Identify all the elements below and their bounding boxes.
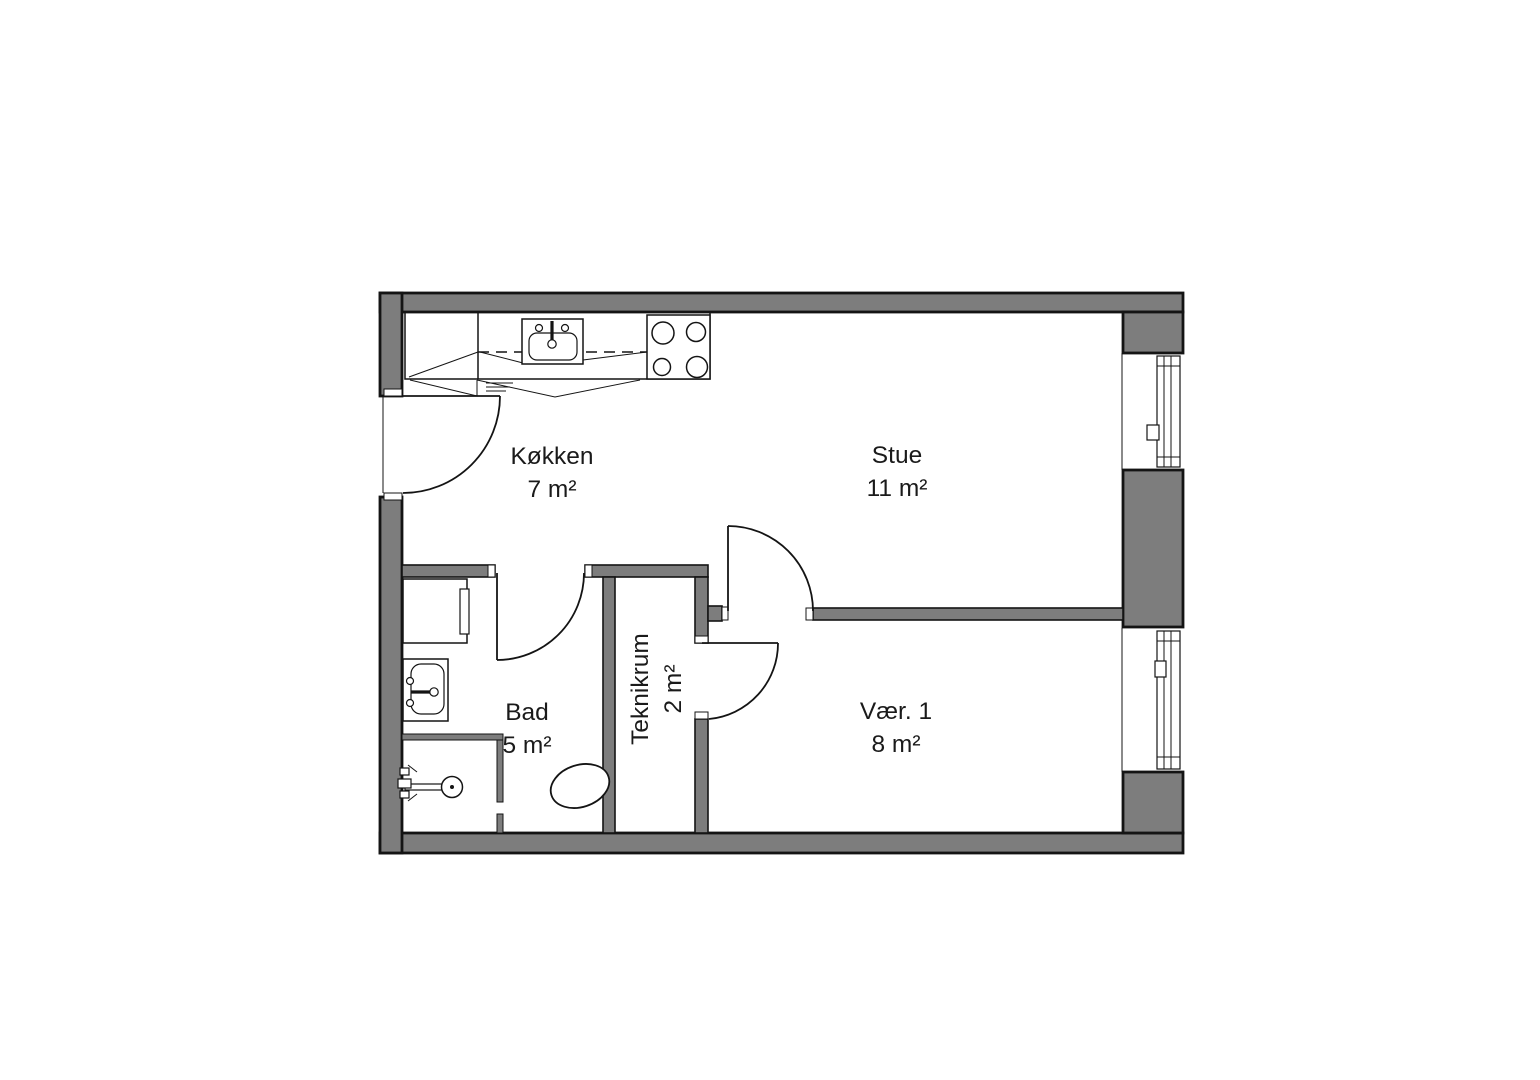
bedroom-window xyxy=(1122,628,1180,772)
living-room-window xyxy=(1122,353,1180,470)
bathroom-door xyxy=(497,573,584,660)
bathroom-cabinet xyxy=(403,579,469,643)
room-label-kokken: Køkken 7 m² xyxy=(510,440,593,506)
room-label-vaer1: Vær. 1 8 m² xyxy=(860,695,932,761)
room-name: Teknikrum xyxy=(624,633,657,745)
room-label-stue: Stue 11 m² xyxy=(867,439,928,505)
room-name: Bad xyxy=(503,696,552,729)
kitchen-sink-icon xyxy=(522,319,583,364)
room-label-bad: Bad 5 m² xyxy=(503,696,552,762)
floorplan-canvas: Køkken 7 m² Stue 11 m² Bad 5 m² Teknikru… xyxy=(0,0,1540,1080)
room-name: Stue xyxy=(867,439,928,472)
room-name: Køkken xyxy=(510,440,593,473)
room-area: 7 m² xyxy=(510,473,593,506)
room-label-teknikrum: Teknikrum 2 m² xyxy=(624,633,690,745)
stove-icon xyxy=(647,315,710,379)
shower-icon xyxy=(398,765,463,801)
room-area: 2 m² xyxy=(657,633,690,745)
room-area: 8 m² xyxy=(860,728,932,761)
washbasin-icon xyxy=(403,659,448,721)
room-area: 5 m² xyxy=(503,729,552,762)
teknikrum-door xyxy=(702,643,778,719)
entrance-door xyxy=(383,389,500,500)
floorplan-drawing xyxy=(0,0,1540,1080)
room-area: 11 m² xyxy=(867,472,928,505)
bedroom-door xyxy=(728,526,813,611)
room-name: Vær. 1 xyxy=(860,695,932,728)
